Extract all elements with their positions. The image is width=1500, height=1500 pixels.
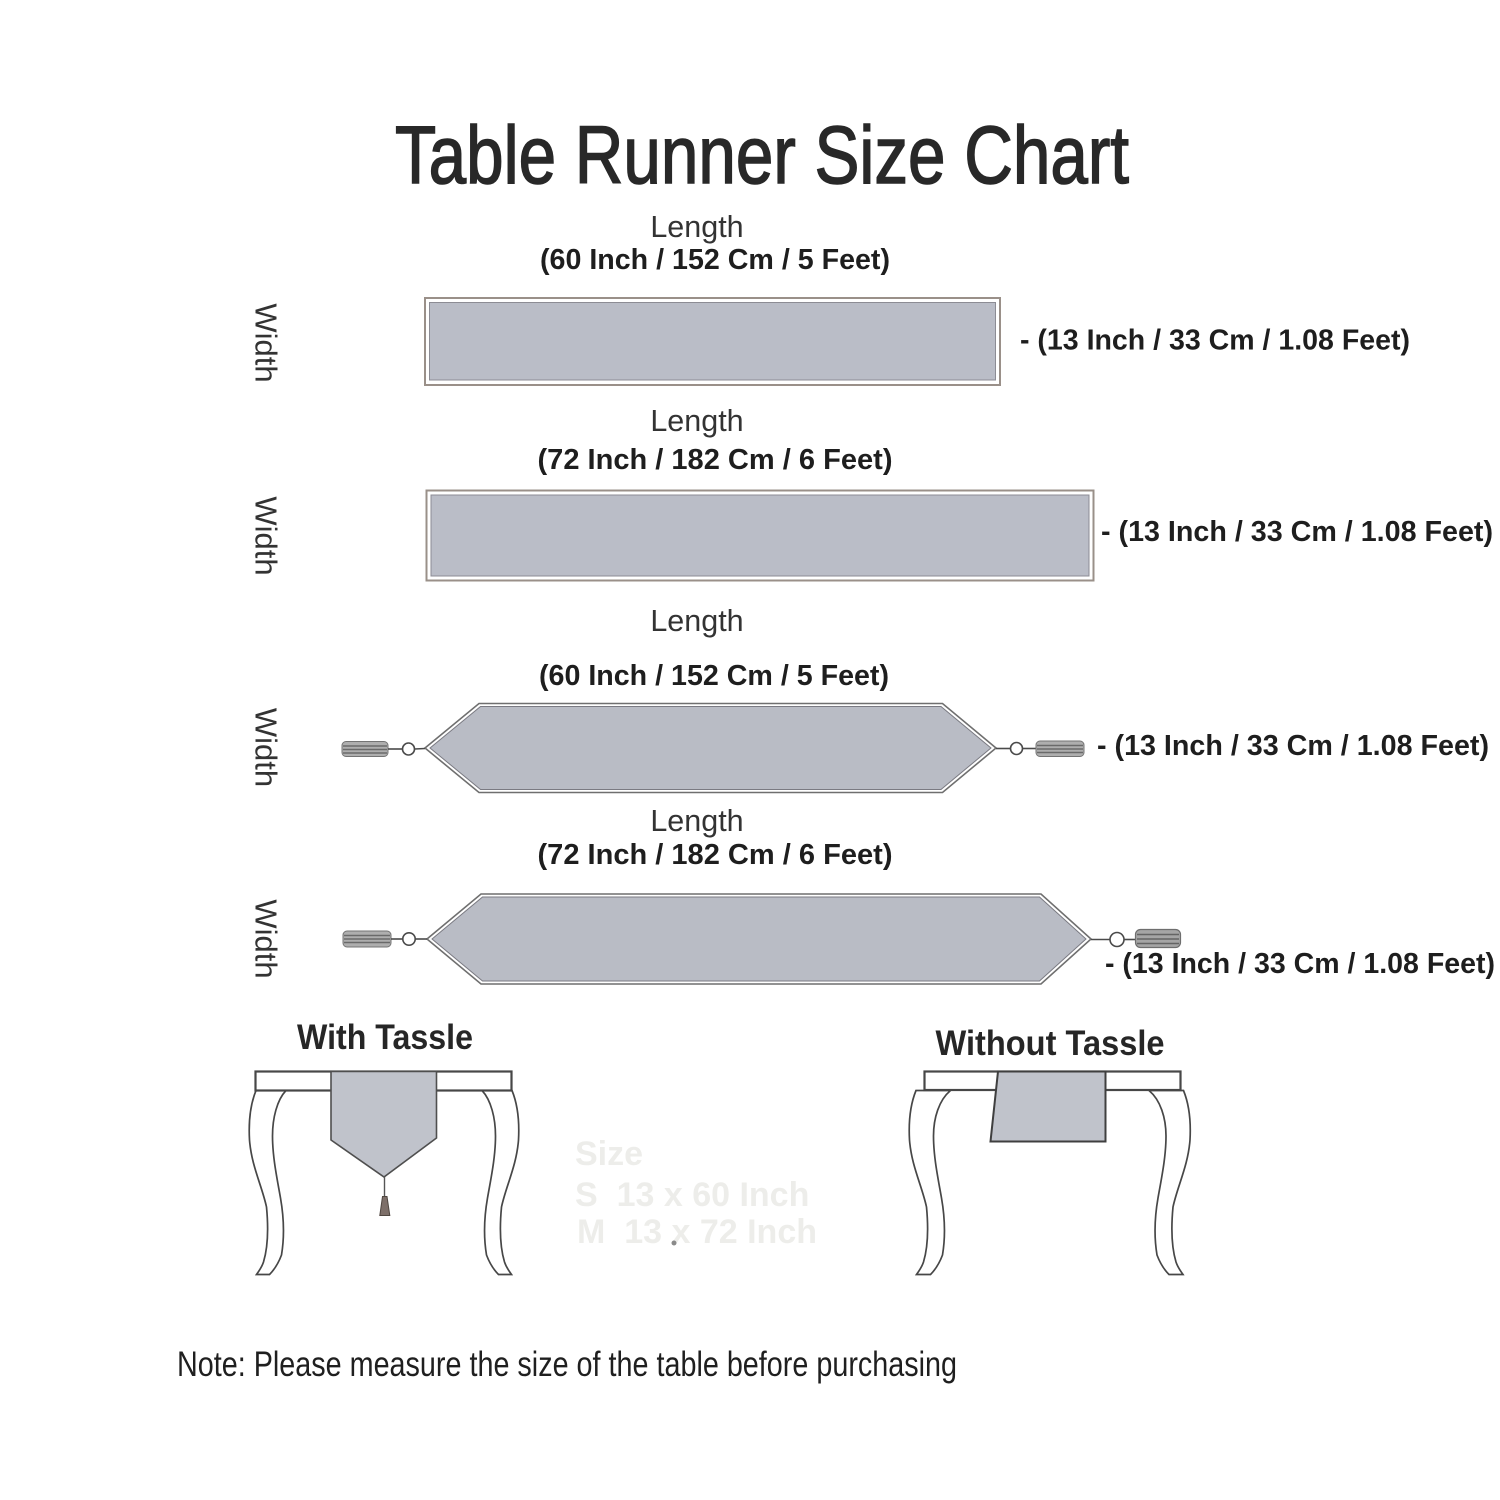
svg-text:(60 Inch / 152 Cm / 5 Feet): (60 Inch / 152 Cm / 5 Feet) bbox=[539, 660, 889, 692]
svg-text:Without Tassle: Without Tassle bbox=[936, 1024, 1165, 1063]
svg-text:Length: Length bbox=[650, 404, 743, 438]
svg-text:Length: Length bbox=[650, 604, 743, 638]
svg-text:- (13 Inch / 33 Cm / 1.08 Feet: - (13 Inch / 33 Cm / 1.08 Feet) bbox=[1097, 730, 1489, 762]
svg-text:With Tassle: With Tassle bbox=[297, 1018, 473, 1057]
svg-text:- (13 Inch / 33 Cm / 1.08 Feet: - (13 Inch / 33 Cm / 1.08 Feet) bbox=[1020, 325, 1410, 357]
svg-text:Length: Length bbox=[650, 804, 743, 838]
svg-text:S 13 x 60 Inch: S 13 x 60 Inch bbox=[575, 1176, 809, 1214]
svg-text:Width: Width bbox=[249, 496, 284, 575]
svg-text:(60 Inch / 152 Cm / 5 Feet): (60 Inch / 152 Cm / 5 Feet) bbox=[540, 244, 890, 276]
svg-text:Width: Width bbox=[249, 708, 284, 787]
svg-text:Size: Size bbox=[575, 1135, 643, 1173]
svg-text:- (13 Inch / 33 Cm / 1.08 Feet: - (13 Inch / 33 Cm / 1.08 Feet) bbox=[1105, 948, 1495, 980]
svg-text:Width: Width bbox=[249, 899, 284, 978]
svg-text:(72 Inch / 182 Cm / 6 Feet): (72 Inch / 182 Cm / 6 Feet) bbox=[538, 839, 893, 871]
svg-text:- (13 Inch / 33 Cm / 1.08 Feet: - (13 Inch / 33 Cm / 1.08 Feet) bbox=[1101, 516, 1493, 548]
svg-text:(72 Inch / 182 Cm / 6 Feet): (72 Inch / 182 Cm / 6 Feet) bbox=[538, 444, 893, 476]
svg-text:Length: Length bbox=[650, 210, 743, 244]
svg-text:M 13 x 72 Inch: M 13 x 72 Inch bbox=[577, 1213, 817, 1251]
svg-text:Table Runner Size Chart: Table Runner Size Chart bbox=[395, 110, 1129, 201]
svg-text:Note: Please measure the size: Note: Please measure the size of the tab… bbox=[177, 1345, 957, 1384]
svg-text:Width: Width bbox=[249, 303, 284, 382]
